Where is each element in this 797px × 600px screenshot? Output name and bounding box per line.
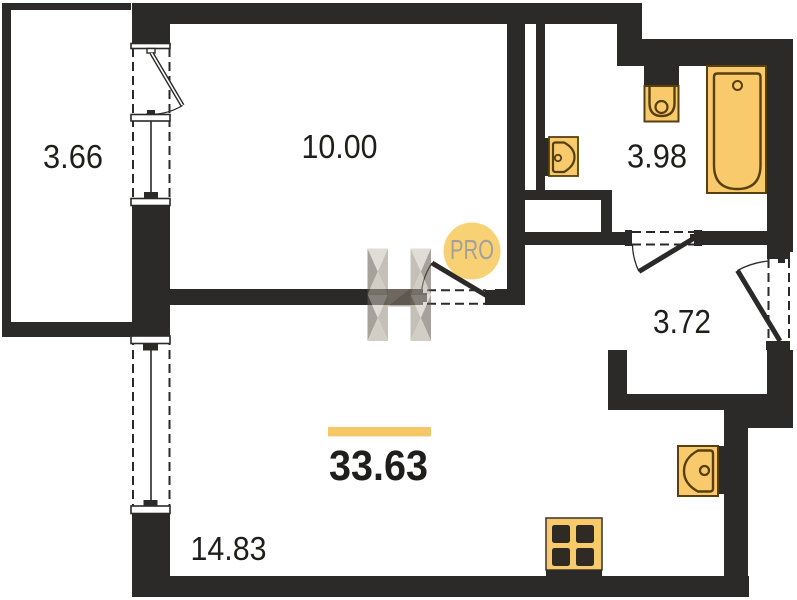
svg-text:3.66: 3.66: [43, 138, 103, 175]
svg-text:14.83: 14.83: [191, 530, 267, 567]
svg-text:PRO: PRO: [450, 234, 494, 265]
svg-text:3.72: 3.72: [653, 303, 711, 340]
svg-text:33.63: 33.63: [329, 442, 428, 490]
svg-text:10.00: 10.00: [302, 128, 378, 165]
svg-text:3.98: 3.98: [627, 138, 687, 175]
